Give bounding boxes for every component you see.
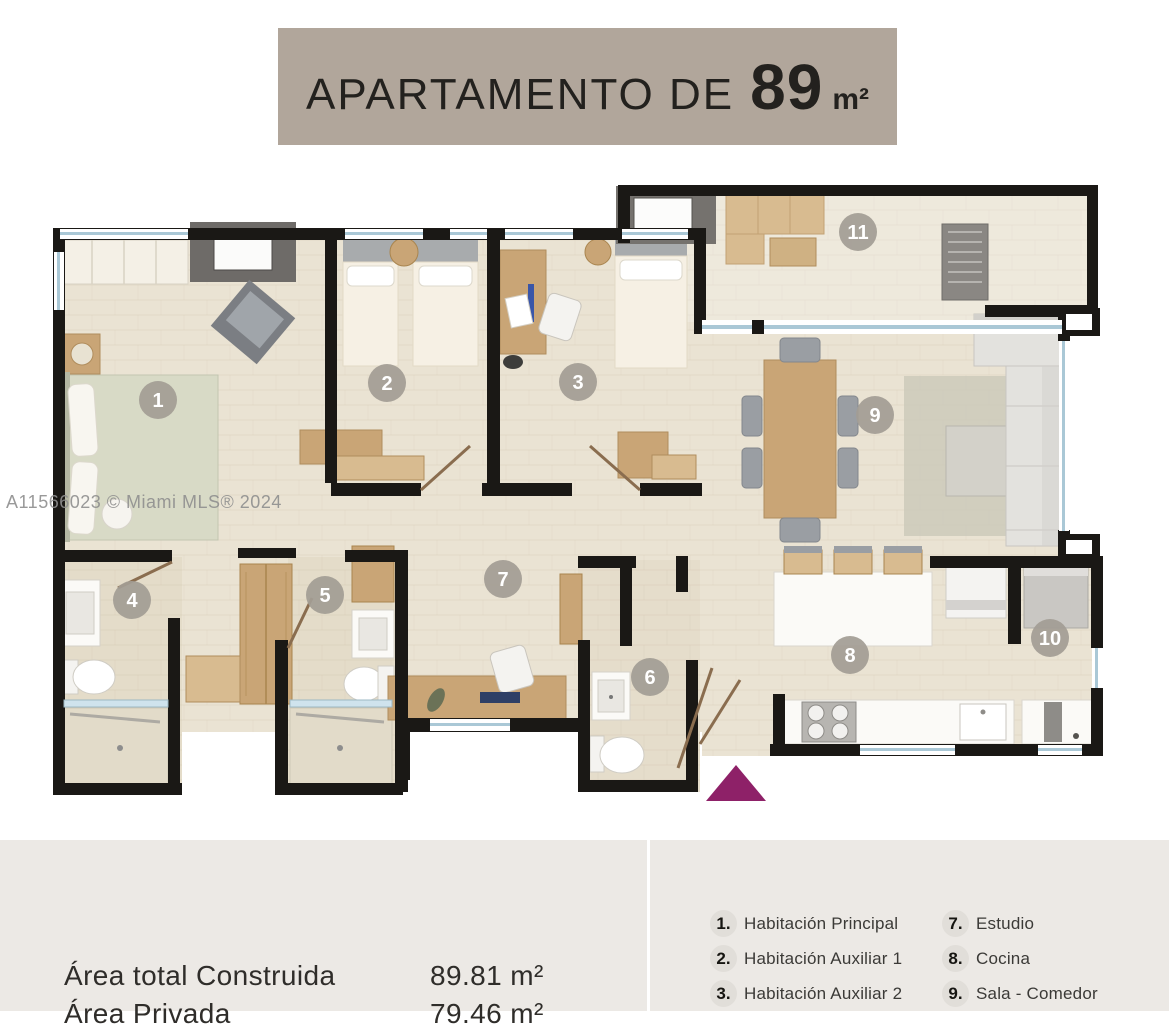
legend-item-8: 8.Cocina	[942, 941, 1162, 976]
svg-text:1: 1	[152, 390, 163, 412]
area-row: Área Privada79.46 m²	[64, 998, 624, 1036]
nightstand	[390, 238, 418, 266]
legend-item-7: 7.Estudio	[942, 906, 1162, 941]
svg-text:7: 7	[497, 569, 508, 591]
nightstand	[585, 239, 611, 265]
legend-label: Estudio	[976, 914, 1034, 934]
room-badge-6: 6	[631, 658, 669, 696]
island	[774, 572, 932, 646]
legend-label: Habitación Principal	[744, 914, 898, 934]
toilet	[73, 660, 115, 694]
mls-watermark: A11566023 © Miami MLS® 2024	[6, 492, 282, 513]
legend-number-chip: 1.	[710, 910, 737, 937]
room-badge-5: 5	[306, 576, 344, 614]
floor-plan-page: { "title": { "prefix": "APARTAMENTO DE",…	[0, 0, 1169, 1011]
legend-label: Habitación Auxiliar 1	[744, 949, 902, 969]
area-value: 79.46 m²	[430, 998, 544, 1030]
title-banner: APARTAMENTO DE 89 m²	[278, 28, 897, 145]
room-badge-7: 7	[484, 560, 522, 598]
legend-number-chip: 2.	[710, 945, 737, 972]
area-label: Área total Construida	[64, 960, 335, 992]
svg-text:11: 11	[847, 222, 868, 244]
svg-text:5: 5	[319, 585, 330, 607]
legend-column-1: 1.Habitación Principal2.Habitación Auxil…	[710, 906, 942, 1011]
dining-table	[764, 360, 836, 518]
room-badge-4: 4	[113, 581, 151, 619]
legend-label: Cocina	[976, 949, 1030, 969]
room-legend: 1.Habitación Principal2.Habitación Auxil…	[710, 906, 1162, 1011]
room-badge-2: 2	[368, 364, 406, 402]
page-title: APARTAMENTO DE 89 m²	[306, 50, 869, 124]
svg-text:10: 10	[1039, 628, 1061, 650]
legend-item-9: 9.Sala - Comedor	[942, 976, 1162, 1011]
room-badge-11: 11	[839, 213, 877, 251]
legend-number-chip: 9.	[942, 980, 969, 1007]
area-value: 89.81 m²	[430, 960, 544, 992]
room-badge-8: 8	[831, 636, 869, 674]
svg-text:9: 9	[869, 405, 880, 427]
area-label: Área Privada	[64, 998, 231, 1030]
title-size: 89	[750, 50, 823, 124]
panel-divider	[647, 840, 650, 1011]
legend-item-3: 3.Habitación Auxiliar 2	[710, 976, 942, 1011]
entrance-arrow	[706, 765, 766, 801]
area-row: Área total Construida89.81 m²	[64, 960, 624, 998]
room-badge-1: 1	[139, 381, 177, 419]
svg-text:3: 3	[572, 372, 583, 394]
room-badge-10: 10	[1031, 619, 1069, 657]
legend-number-chip: 3.	[710, 980, 737, 1007]
title-prefix: APARTAMENTO DE	[306, 70, 734, 120]
sink	[960, 704, 1006, 740]
outdoor-sofa	[726, 192, 824, 234]
room-badge-3: 3	[559, 363, 597, 401]
room-badge-9: 9	[856, 396, 894, 434]
bar-stools	[784, 546, 922, 574]
legend-column-2: 7.Estudio8.Cocina9.Sala - Comedor	[942, 906, 1162, 1011]
area-measurements: Área total Construida89.81 m²Área Privad…	[64, 960, 624, 1036]
legend-label: Habitación Auxiliar 2	[744, 984, 902, 1004]
legend-number-chip: 7.	[942, 910, 969, 937]
svg-text:4: 4	[126, 590, 138, 612]
legend-label: Sala - Comedor	[976, 984, 1098, 1004]
info-panel: Área total Construida89.81 m²Área Privad…	[0, 840, 1169, 1011]
legend-number-chip: 8.	[942, 945, 969, 972]
svg-text:8: 8	[844, 645, 855, 667]
legend-item-2: 2.Habitación Auxiliar 1	[710, 941, 942, 976]
title-unit: m²	[832, 83, 869, 117]
toilet	[600, 737, 644, 773]
legend-item-1: 1.Habitación Principal	[710, 906, 942, 941]
coffee-table	[946, 426, 1012, 496]
svg-text:6: 6	[644, 667, 655, 689]
studio-desk	[388, 676, 566, 720]
svg-text:2: 2	[381, 373, 392, 395]
